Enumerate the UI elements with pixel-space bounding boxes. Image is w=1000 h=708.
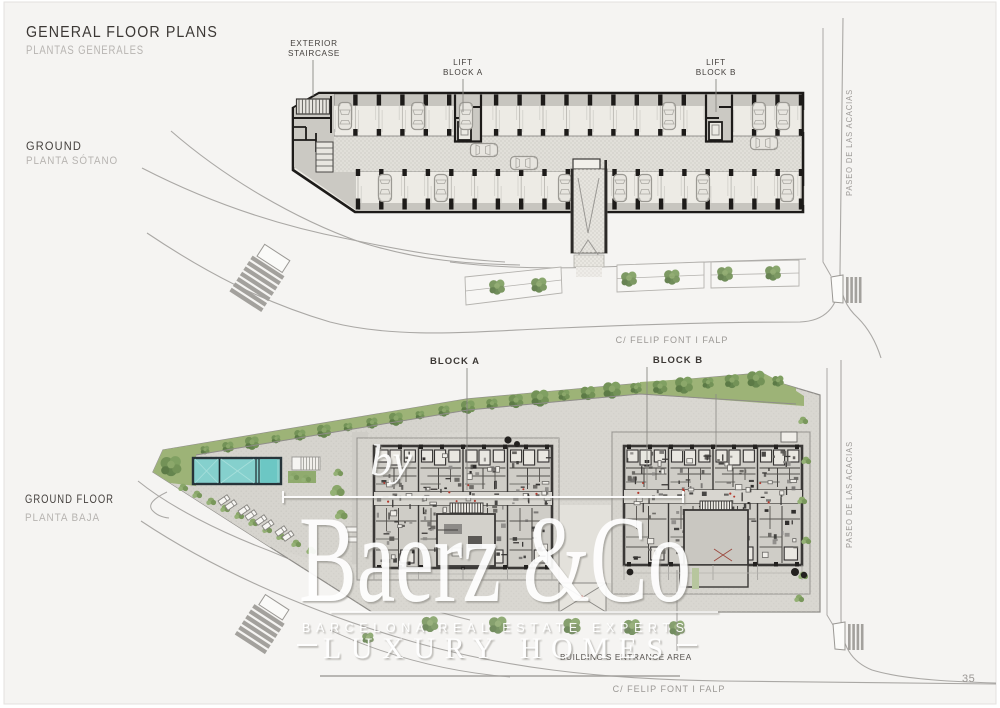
svg-text:PLANTA SÓTANO: PLANTA SÓTANO [26,154,118,167]
svg-text:by: by [370,436,412,485]
svg-text:PASEO DE LAS ACACIAS: PASEO DE LAS ACACIAS [845,89,854,196]
svg-text:PLANTAS GENERALES: PLANTAS GENERALES [26,45,144,57]
svg-text:GROUND: GROUND [26,141,82,153]
svg-text:BLOCK A: BLOCK A [430,356,480,367]
svg-text:Baerz &Co: Baerz &Co [299,491,691,628]
svg-text:C/ FELIP FONT I FALP: C/ FELIP FONT I FALP [616,335,729,345]
svg-text:LIFT: LIFT [706,58,726,67]
svg-text:C/ FELIP FONT I FALP: C/ FELIP FONT I FALP [613,684,726,694]
svg-text:BLOCK B: BLOCK B [696,68,736,77]
svg-text:BLOCK B: BLOCK B [653,355,703,366]
svg-text:EXTERIOR: EXTERIOR [290,39,337,48]
svg-text:PASEO DE LAS ACACIAS: PASEO DE LAS ACACIAS [845,441,854,548]
svg-text:BLOCK A: BLOCK A [443,68,483,77]
svg-text:PLANTA BAJA: PLANTA BAJA [25,512,100,524]
svg-text:35: 35 [962,673,975,685]
svg-text:STAIRCASE: STAIRCASE [288,49,340,58]
svg-text:LIFT: LIFT [453,58,473,67]
svg-text:GROUND FLOOR: GROUND FLOOR [25,494,114,506]
svg-text:LUXURY HOMES: LUXURY HOMES [323,632,671,665]
svg-text:GENERAL FLOOR PLANS: GENERAL FLOOR PLANS [26,24,218,41]
